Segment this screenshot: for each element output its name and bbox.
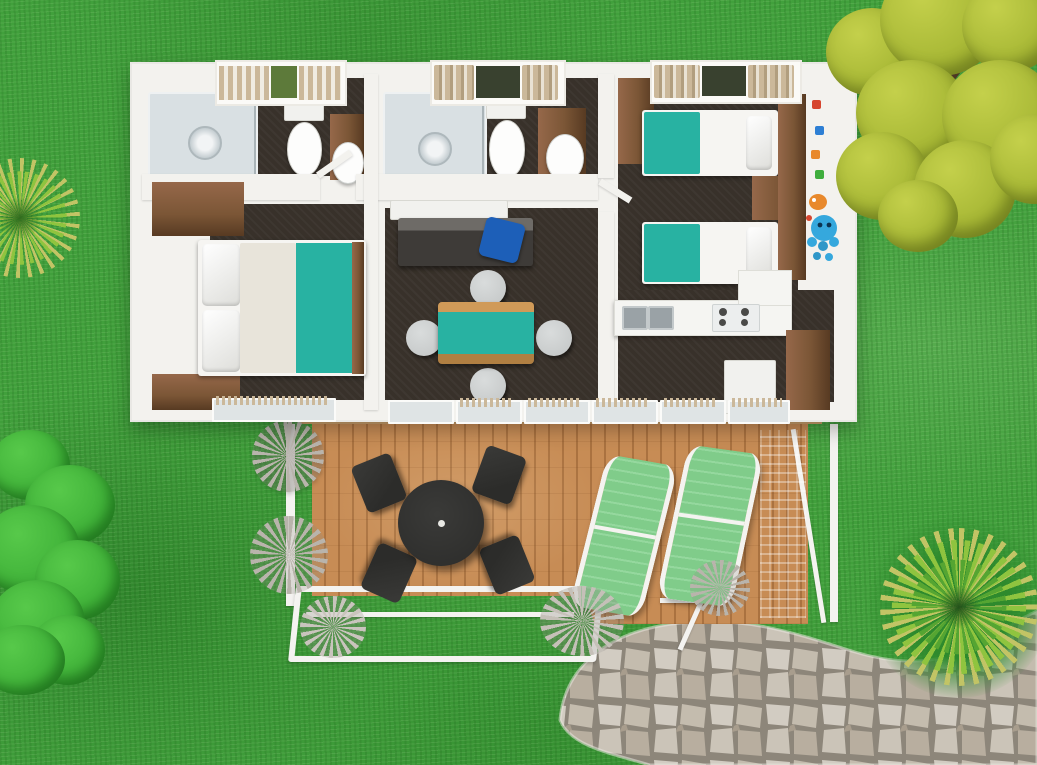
yucca-center: [0, 196, 42, 240]
window-curtain-left: [434, 65, 474, 100]
window-curtain-left: [654, 65, 700, 98]
door4-curtain-comb: [596, 398, 650, 407]
bed1-teal-blanket: [644, 112, 700, 174]
burner: [741, 308, 749, 316]
master-duvet: [240, 243, 296, 373]
blind-slats: [299, 66, 341, 100]
burner: [719, 308, 727, 316]
dining-chair-top: [470, 270, 506, 306]
bathroom1-toilet: [287, 122, 322, 176]
yucca-plant-bottom-right: [880, 528, 1037, 686]
window-glass-dark: [702, 66, 746, 96]
blind-window-green: [271, 66, 297, 98]
agave-plant: [300, 596, 366, 658]
agave-plant: [540, 586, 624, 656]
master-wardrobe: [152, 182, 244, 236]
door2-curtain-comb: [460, 398, 514, 407]
kitchen-counter-return: [738, 270, 792, 306]
master-pillow-bottom: [202, 310, 240, 372]
wall-vertical-2b: [598, 212, 614, 410]
bed2-teal-blanket: [644, 224, 700, 282]
kitchen-sink-basin1: [622, 306, 648, 330]
dining-chair-right: [536, 320, 572, 356]
toy-orange: [811, 150, 820, 159]
wall-vertical-2: [598, 74, 614, 178]
toy-red: [812, 100, 821, 109]
sliding-door-1: [388, 400, 454, 424]
large-tree: [822, 0, 1037, 254]
twin-bed-1: [642, 110, 778, 176]
bathroom1-toilet-tank: [284, 104, 324, 121]
dining-chair-left: [406, 320, 442, 356]
door3-curtain-comb: [528, 398, 582, 407]
tree-foliage: [878, 180, 958, 252]
deck-railing-right-post: [830, 424, 838, 622]
kitchen-sink-basin2: [648, 306, 674, 330]
window-curtain-right: [522, 65, 558, 100]
dining-table: [438, 302, 534, 364]
master-teal-runner: [296, 243, 352, 373]
master-double-bed: [198, 240, 366, 376]
blind-slats: [219, 66, 269, 100]
deck-lattice: [760, 430, 806, 618]
wall-bathrooms-bottom-right: [356, 174, 598, 200]
lounger-crossbar: [678, 512, 744, 525]
garden-scene: [0, 0, 1037, 765]
kitchen-pantry: [786, 330, 830, 410]
window-glass-dark: [476, 66, 520, 98]
bathroom1-window-blind: [215, 60, 347, 106]
bush-cluster: [0, 420, 170, 680]
wall-vertical-1: [364, 74, 378, 410]
lounger-crossbar: [594, 525, 656, 540]
master-window-curtain-comb: [216, 396, 328, 405]
yucca-center: [937, 585, 981, 629]
door5-curtain-comb: [664, 398, 718, 407]
bathroom2-toilet: [489, 120, 525, 178]
bed1-pillow: [746, 116, 772, 170]
bathroom2-showerhead: [418, 132, 452, 166]
agave-plant: [252, 420, 324, 492]
agave-plant: [690, 560, 750, 616]
door6-curtain-comb: [732, 398, 782, 407]
bathroom2-window: [430, 60, 566, 106]
twin-window: [650, 60, 802, 104]
master-pillow-top: [202, 244, 240, 306]
burner: [719, 319, 726, 326]
master-footboard: [352, 242, 364, 374]
burner: [741, 319, 748, 326]
kitchen-gas-hob: [712, 304, 760, 332]
bathroom1-showerhead: [188, 126, 222, 160]
window-curtain-right: [748, 65, 794, 98]
house-floor-plan: [130, 62, 857, 422]
agave-plant: [250, 516, 328, 594]
table-center-hole: [438, 520, 445, 527]
